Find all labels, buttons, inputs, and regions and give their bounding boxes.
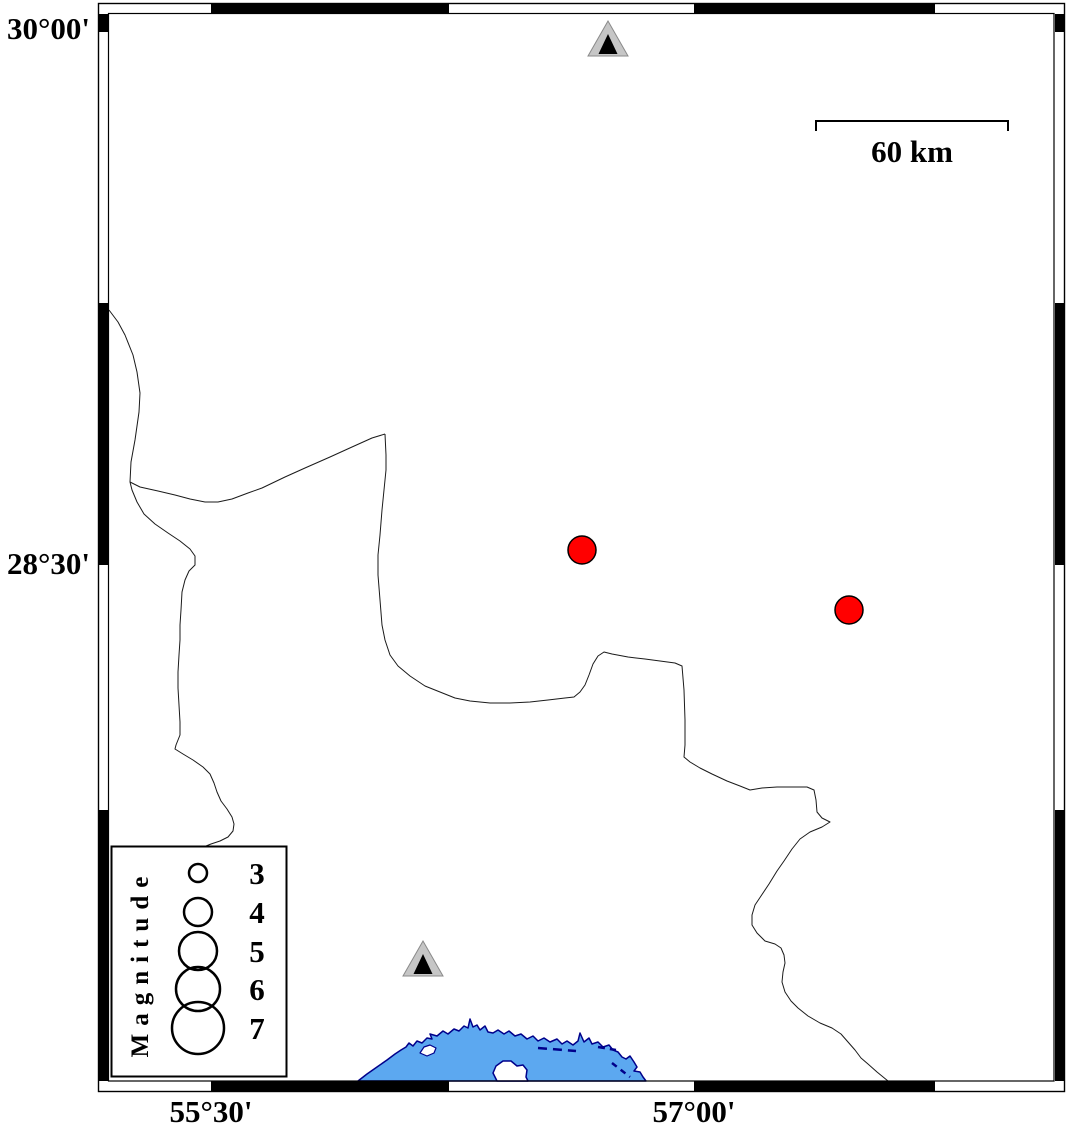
scale-bar-label: 60 km	[812, 134, 1012, 170]
earthquake-marker	[568, 536, 596, 564]
lat-tick-label-top: 30°00'	[0, 12, 90, 46]
legend-title: Magnitude	[126, 843, 156, 1083]
earthquake-layer	[568, 536, 863, 624]
lon-tick-label-east: 57°00'	[604, 1095, 784, 1129]
boundary-line-south	[130, 482, 234, 846]
boundary-line-mid	[130, 434, 385, 502]
earthquake-marker	[835, 596, 863, 624]
sea-layer	[358, 1019, 646, 1081]
legend-magnitude-label: 6	[249, 972, 265, 1007]
boundary-line-west	[109, 310, 140, 482]
legend-magnitude-label: 4	[249, 895, 265, 930]
scale-bar-bracket	[816, 121, 1008, 131]
legend-magnitude-label: 7	[249, 1011, 265, 1046]
legend-magnitude-label: 3	[249, 856, 265, 891]
seismicity-map: 34567 30°00' 28°30' 55°30' 57°00' 60 km …	[0, 0, 1066, 1130]
legend-magnitude-label: 5	[249, 934, 265, 969]
boundary-line-east	[378, 434, 888, 1081]
lon-tick-label-west: 55°30'	[121, 1095, 301, 1129]
scale-bar	[816, 121, 1008, 131]
lat-tick-label-middle: 28°30'	[0, 547, 90, 581]
station-layer	[403, 21, 628, 976]
